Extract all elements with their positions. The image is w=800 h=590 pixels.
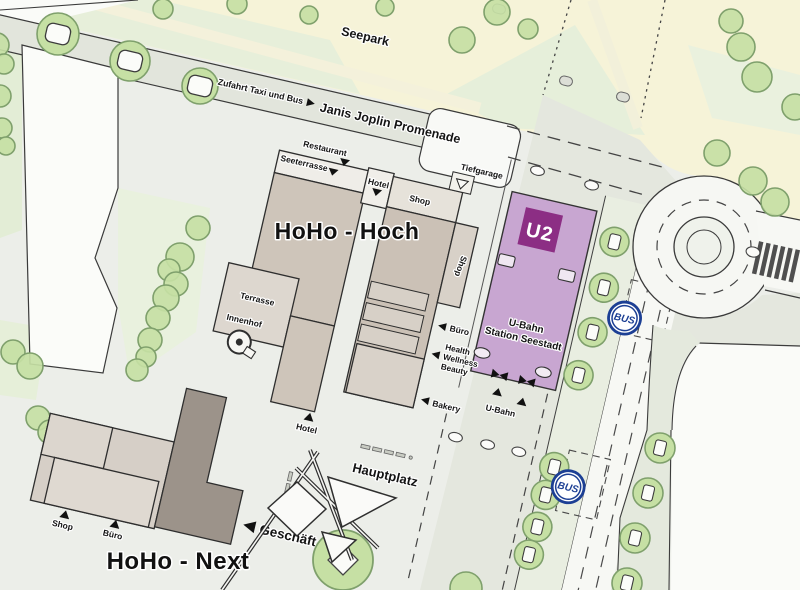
site-map: U2 U-Bahn Station Seestadt U-Bahn BUSBUS (0, 0, 800, 590)
tree-icon (449, 27, 475, 53)
tree-icon (742, 62, 772, 92)
tree-icon (704, 140, 730, 166)
tree-icon (782, 94, 800, 120)
tree-icon (484, 0, 510, 25)
tree-icon (727, 33, 755, 61)
tree-icon (719, 9, 743, 33)
map-canvas: U2 U-Bahn Station Seestadt U-Bahn BUSBUS (0, 0, 800, 590)
roundabout-island (674, 217, 734, 277)
plot-west (22, 45, 118, 373)
tree-icon (0, 118, 12, 138)
tree-icon (518, 19, 538, 39)
tree-icon (153, 0, 173, 19)
tree-icon (376, 0, 394, 16)
tree-icon (0, 54, 14, 74)
tree-icon (300, 6, 318, 24)
tree-icon (227, 0, 247, 14)
tree-icon (739, 167, 767, 195)
tree-icon (146, 306, 170, 330)
tree-icon (761, 188, 789, 216)
hoho-hoch-title: HoHo - Hoch (275, 218, 420, 244)
tree-icon (126, 359, 148, 381)
tree-icon (0, 137, 15, 155)
hoho-next-title: HoHo - Next (107, 548, 250, 575)
plot-southeast (671, 343, 800, 590)
tree-icon (186, 216, 210, 240)
tree-icon (17, 353, 43, 379)
